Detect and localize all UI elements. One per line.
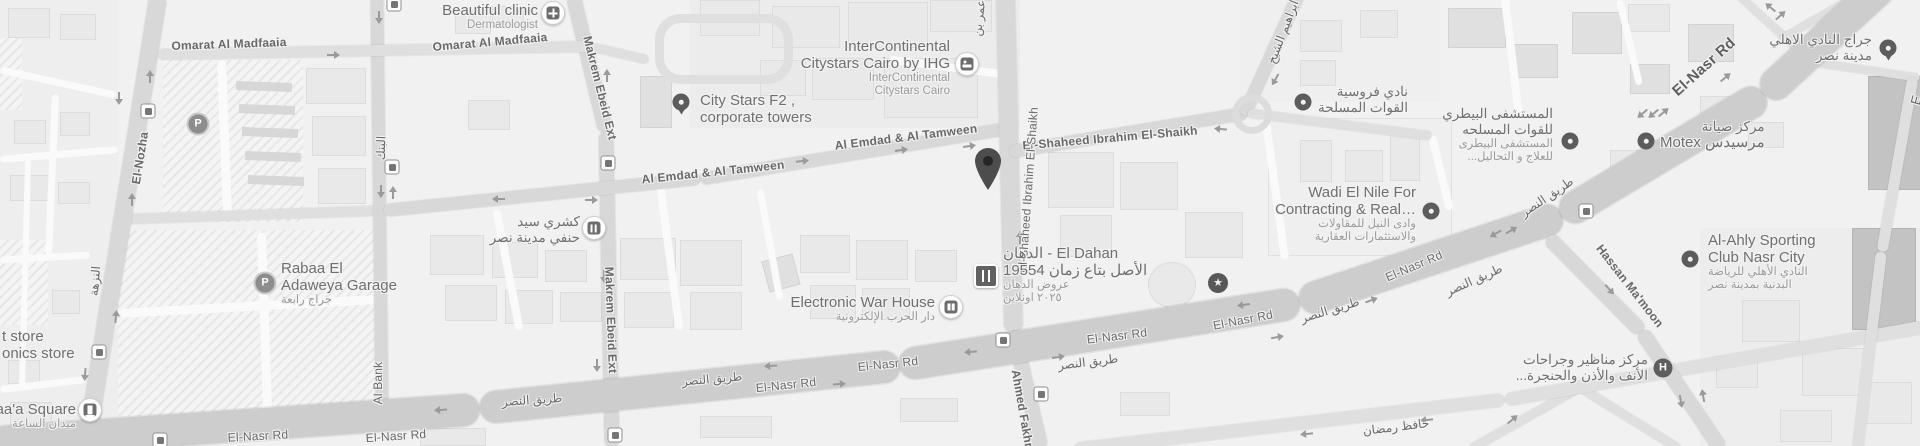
building — [1628, 4, 1670, 32]
building — [318, 168, 366, 204]
building — [856, 240, 908, 280]
poi-title[interactable]: Citystars Cairo by IHG — [801, 55, 950, 72]
cross-glyph-icon — [547, 7, 560, 20]
one-way-arrow-icon — [763, 362, 778, 371]
bus-stop-icon[interactable] — [1579, 204, 1594, 219]
selected-place-marker-icon[interactable] — [975, 148, 1001, 190]
building — [420, 428, 486, 446]
building — [60, 112, 90, 136]
poi-title[interactable]: القوات المسلحة — [1318, 100, 1408, 116]
poi-subtitle: النادي الأهلي للرياضة — [1708, 266, 1816, 279]
building — [915, 250, 957, 282]
clinic-icon[interactable] — [541, 1, 565, 25]
one-way-arrow-icon — [146, 69, 154, 83]
one-way-arrow-icon — [80, 368, 89, 383]
building — [58, 182, 90, 204]
hospital-icon[interactable]: H — [1654, 359, 1673, 378]
bus-stop-icon[interactable] — [608, 428, 623, 443]
poi-title[interactable]: Club Nasr City — [1708, 249, 1816, 266]
building — [640, 76, 672, 128]
one-way-arrow-icon — [327, 51, 341, 59]
road-loop — [655, 14, 793, 84]
roundabout — [1232, 94, 1272, 134]
one-way-arrow-icon — [111, 309, 120, 324]
one-way-arrow-icon — [1656, 104, 1672, 119]
road-label-makrem: Makrem Ebeid Ext — [602, 266, 620, 373]
poi-intercontinental[interactable]: InterContinental Citystars Cairo by IHG … — [801, 38, 950, 98]
building — [560, 292, 602, 322]
poi-title[interactable]: مدينة نصر — [1769, 48, 1872, 64]
one-way-arrow-icon — [593, 359, 601, 373]
bus-stop-icon[interactable] — [601, 156, 616, 171]
poi-subtitle: Citystars Cairo — [801, 85, 950, 98]
building — [690, 292, 742, 330]
poi-store-partial[interactable]: t store onics store — [2, 328, 75, 362]
building — [624, 292, 674, 328]
building — [445, 285, 497, 321]
building — [1048, 152, 1114, 208]
building-icon[interactable] — [939, 295, 963, 319]
building — [14, 120, 46, 144]
building — [1780, 410, 1832, 442]
building — [1185, 212, 1243, 258]
poi-subtitle: Dermatologist — [442, 19, 538, 32]
poi-el-dahan[interactable]: الدهان - El Dahan الأصل بتاع زمان 19554 … — [1003, 245, 1147, 305]
building — [1300, 140, 1332, 182]
building — [1742, 300, 1800, 342]
restaurant-icon[interactable] — [582, 216, 606, 240]
building — [700, 416, 772, 438]
building — [1300, 60, 1336, 86]
bus-stop-icon[interactable] — [996, 333, 1011, 348]
one-way-arrow-icon — [115, 92, 123, 106]
poi-subtitle: ميدان الساعة — [0, 418, 76, 431]
building — [1512, 44, 1558, 78]
one-way-arrow-icon — [796, 156, 811, 165]
poi-title[interactable]: مركز مناظير وجراحات — [1516, 352, 1648, 368]
poi-subtitle: المستشفى البيطرى — [1442, 138, 1553, 151]
poi-title[interactable]: كشري سيد — [490, 214, 580, 230]
bus-stop-icon[interactable] — [153, 433, 168, 446]
place-pin-icon[interactable] — [1295, 94, 1312, 111]
building — [306, 68, 366, 104]
bus-stop-icon[interactable] — [92, 345, 107, 360]
one-way-arrow-icon — [128, 192, 136, 206]
bus-stop-icon[interactable] — [141, 104, 156, 119]
building — [468, 100, 510, 130]
poi-subtitle: للعلاج و التحاليل... — [1442, 151, 1553, 164]
poi-title[interactable]: للقوات المسلحه — [1442, 122, 1553, 138]
restaurant-badge-icon[interactable] — [974, 264, 998, 288]
road-label-el-nasr: El-Nasr Rd — [365, 427, 427, 445]
building — [1345, 150, 1383, 182]
poi-wadi-el-nile[interactable]: Wadi El Nile For Contracting & Real… واد… — [1275, 184, 1416, 244]
square-monument-icon[interactable] — [78, 398, 102, 422]
bus-stop-icon[interactable] — [387, 0, 402, 12]
building — [545, 250, 587, 282]
poi-subtitle: دار الحرب الإلكترونية — [791, 311, 936, 324]
one-way-arrow-icon — [377, 185, 385, 199]
poi-subtitle: والاستثمارات العقارية — [1275, 231, 1416, 244]
place-pin-icon[interactable] — [1638, 133, 1655, 150]
one-way-arrow-icon — [1270, 332, 1285, 342]
building — [1390, 135, 1420, 181]
poi-forosya-club[interactable]: نادي فروسية القوات المسلحة — [1318, 84, 1408, 116]
building — [52, 290, 80, 314]
building — [312, 116, 366, 156]
poi-subtitle: وادى النيل للمقاولات — [1275, 218, 1416, 231]
bed-glyph-icon — [961, 58, 974, 71]
poi-ahly-club[interactable]: Al-Ahly Sporting Club Nasr City النادي ا… — [1708, 232, 1816, 292]
poi-rabaa-garage[interactable]: Rabaa El Adaweya Garage جراج رابعة — [281, 260, 397, 307]
building — [1572, 12, 1622, 54]
poi-ahly-garage[interactable]: جراج النادي الاهلي مدينة نصر — [1769, 32, 1872, 64]
place-pin-icon[interactable] — [1682, 251, 1699, 268]
tower-glyph-icon — [84, 404, 97, 417]
poi-title[interactable]: Wadi El Nile For — [1275, 184, 1416, 201]
poi-title[interactable]: جراج النادي الاهلي — [1769, 32, 1872, 48]
building — [680, 240, 742, 286]
poi-title[interactable]: InterContinental — [801, 38, 950, 55]
building — [1802, 348, 1868, 396]
bus-stop-icon[interactable] — [1034, 387, 1049, 402]
poi-subtitle: جراج رابعة — [281, 294, 397, 307]
parking-icon[interactable]: P — [187, 113, 210, 136]
poi-title[interactable]: Adaweya Garage — [281, 277, 397, 294]
road-label-el-nozha-ar: النزهة — [87, 265, 104, 296]
poi-title[interactable]: Al-Ahly Sporting — [1708, 232, 1816, 249]
place-pin-icon[interactable] — [1423, 203, 1440, 220]
building — [900, 398, 958, 422]
building — [1148, 262, 1196, 308]
building — [8, 8, 50, 38]
poi-saa-square[interactable]: Saa'a Square ميدان الساعة — [0, 401, 76, 431]
poi-title[interactable]: مرسيدس Motex — [1660, 135, 1765, 151]
one-way-arrow-icon — [1299, 429, 1314, 438]
place-pin-icon[interactable] — [1880, 40, 1897, 57]
poi-title[interactable]: المستشفى البيطري — [1442, 106, 1553, 122]
poi-title[interactable]: Rabaa El — [281, 260, 397, 277]
one-way-arrow-icon — [433, 406, 448, 415]
poi-title[interactable]: مركز صيانة — [1660, 119, 1765, 135]
poi-title[interactable]: t store — [2, 328, 75, 345]
poi-title[interactable]: حنفي مدينة نصر — [490, 230, 580, 246]
poi-title[interactable]: الأنف والأذن والحنجرة... — [1516, 368, 1648, 384]
one-way-arrow-icon — [833, 380, 848, 389]
poi-title[interactable]: corporate towers — [700, 109, 812, 126]
one-way-arrow-icon — [963, 347, 978, 356]
poi-title[interactable]: onics store — [2, 345, 75, 362]
building — [430, 235, 484, 275]
building — [800, 235, 850, 273]
building — [1120, 162, 1178, 210]
poi-electronic-war-house[interactable]: Electronic War House دار الحرب الإلكترون… — [791, 294, 936, 324]
road-segment — [1577, 384, 1682, 446]
building — [1360, 10, 1398, 38]
road-label-el-nasr: El-Nasr Rd — [227, 427, 288, 444]
poi-title[interactable]: Electronic War House — [791, 294, 936, 311]
parking-aisle — [242, 127, 298, 138]
hotel-icon[interactable] — [955, 52, 979, 76]
place-pin-icon[interactable] — [1562, 133, 1579, 150]
poi-title[interactable]: Saa'a Square — [0, 401, 76, 418]
parking-aisle — [239, 104, 295, 115]
one-way-arrow-icon — [1718, 69, 1734, 84]
building — [1448, 8, 1506, 48]
building-glyph-icon — [945, 301, 958, 314]
road-label-al-bank: Al Bank — [371, 362, 385, 405]
one-way-arrow-icon — [491, 195, 505, 203]
utensils-glyph-icon — [588, 222, 601, 235]
poi-title[interactable]: نادي فروسية — [1318, 84, 1408, 100]
poi-title[interactable]: Contracting & Real… — [1275, 201, 1416, 218]
parking-icon[interactable]: P — [254, 272, 277, 295]
poi-vet-hospital[interactable]: المستشفى البيطري للقوات المسلحه المستشفى… — [1442, 106, 1553, 164]
building — [1120, 392, 1170, 416]
poi-title[interactable]: الدهان - El Dahan — [1003, 245, 1147, 262]
poi-title[interactable]: City Stars F2 , — [700, 92, 812, 109]
one-way-arrow-icon — [389, 185, 397, 199]
poi-koshary[interactable]: كشري سيد حنفي مدينة نصر — [490, 214, 580, 246]
building — [1300, 20, 1342, 52]
poi-subtitle: ٢٠٢٥ اونلاين — [1003, 292, 1147, 305]
one-way-arrow-icon — [585, 196, 599, 204]
bus-stop-icon[interactable] — [385, 160, 400, 175]
place-pin-icon[interactable] — [673, 94, 690, 111]
poi-subtitle: عروض الدهان — [1003, 279, 1147, 292]
poi-city-stars[interactable]: City Stars F2 , corporate towers — [700, 92, 812, 126]
road-label-al-bank-ar: البنك — [374, 136, 389, 161]
one-way-arrow-icon — [895, 145, 910, 155]
parking-aisle — [245, 151, 301, 162]
poi-beautiful-clinic[interactable]: Beautiful clinic Dermatologist — [442, 2, 538, 32]
military-star-icon[interactable]: ★ — [1208, 273, 1228, 293]
poi-title[interactable]: Beautiful clinic — [442, 2, 538, 19]
hatched-area — [118, 230, 380, 416]
building — [60, 14, 96, 40]
road-label-shaheed: El-Shaheed Ibrahim El-Shaikh — [1022, 123, 1198, 152]
parking-aisle — [248, 175, 304, 186]
poi-motex[interactable]: مركز صيانة مرسيدس Motex — [1660, 119, 1765, 151]
poi-title[interactable]: الأصل بتاع زمان 19554 — [1003, 262, 1147, 279]
map-canvas[interactable]: Omarat Al Madfaaia Omarat Al Madfaaia El… — [0, 0, 1920, 446]
poi-ent-center[interactable]: مركز مناظير وجراحات الأنف والأذن والحنجر… — [1516, 352, 1648, 384]
parking-aisle — [236, 81, 292, 92]
poi-subtitle: InterContinental — [801, 72, 950, 85]
one-way-arrow-icon — [375, 11, 383, 25]
poi-subtitle: البدنية بمدينة نصر — [1708, 279, 1816, 292]
one-way-arrow-icon — [1213, 124, 1228, 133]
